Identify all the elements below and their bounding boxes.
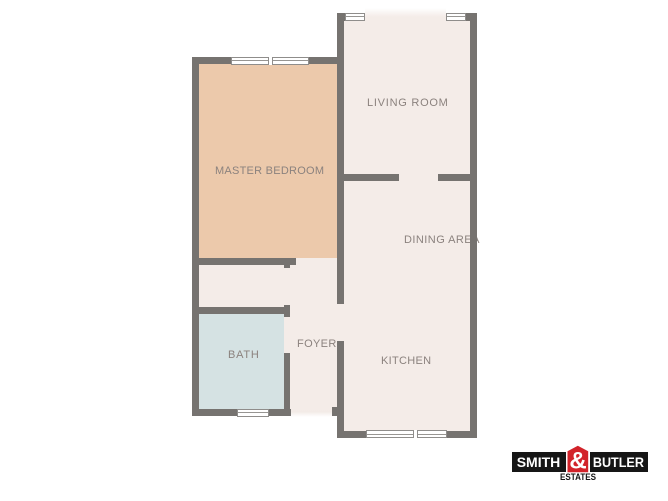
svg-text:&: & [569, 448, 586, 474]
